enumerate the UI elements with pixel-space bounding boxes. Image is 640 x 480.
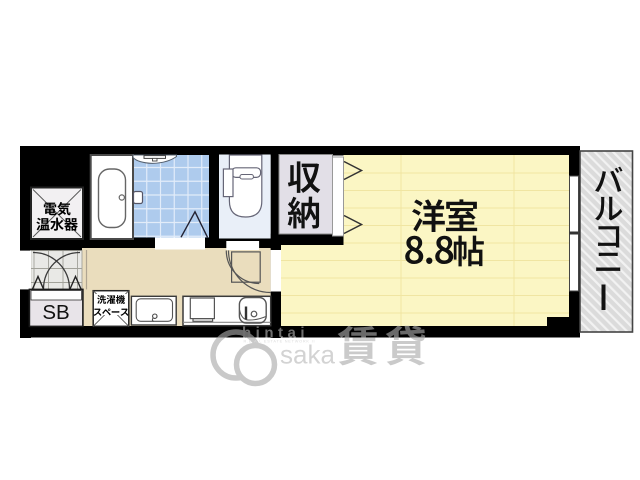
svg-text:saka: saka <box>280 340 335 370</box>
svg-text:SB: SB <box>42 301 69 324</box>
